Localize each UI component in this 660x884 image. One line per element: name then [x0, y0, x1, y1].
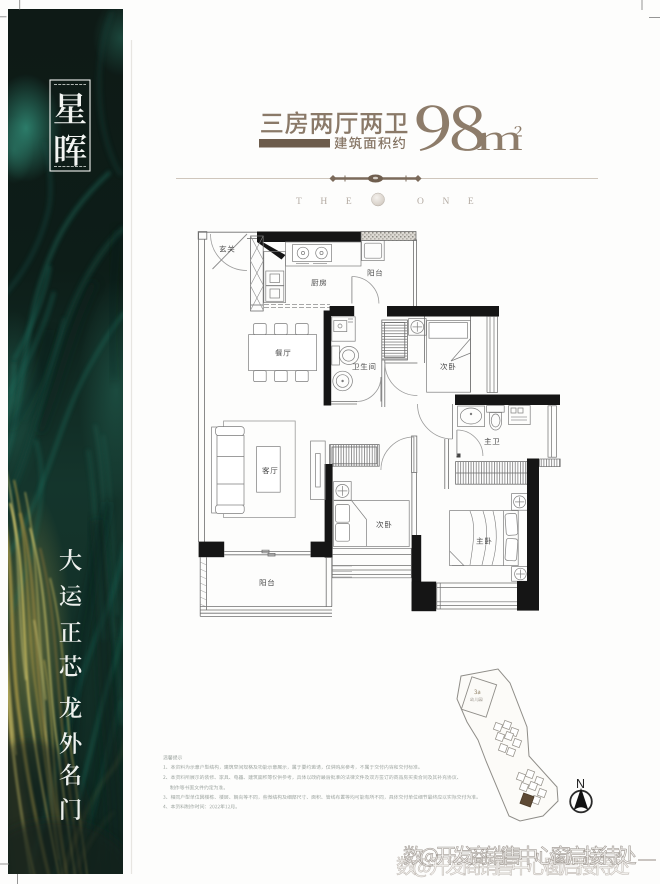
svg-text:ONE: ONE — [417, 197, 492, 207]
svg-text:N: N — [576, 777, 585, 791]
svg-text:THE: THE — [296, 197, 370, 207]
